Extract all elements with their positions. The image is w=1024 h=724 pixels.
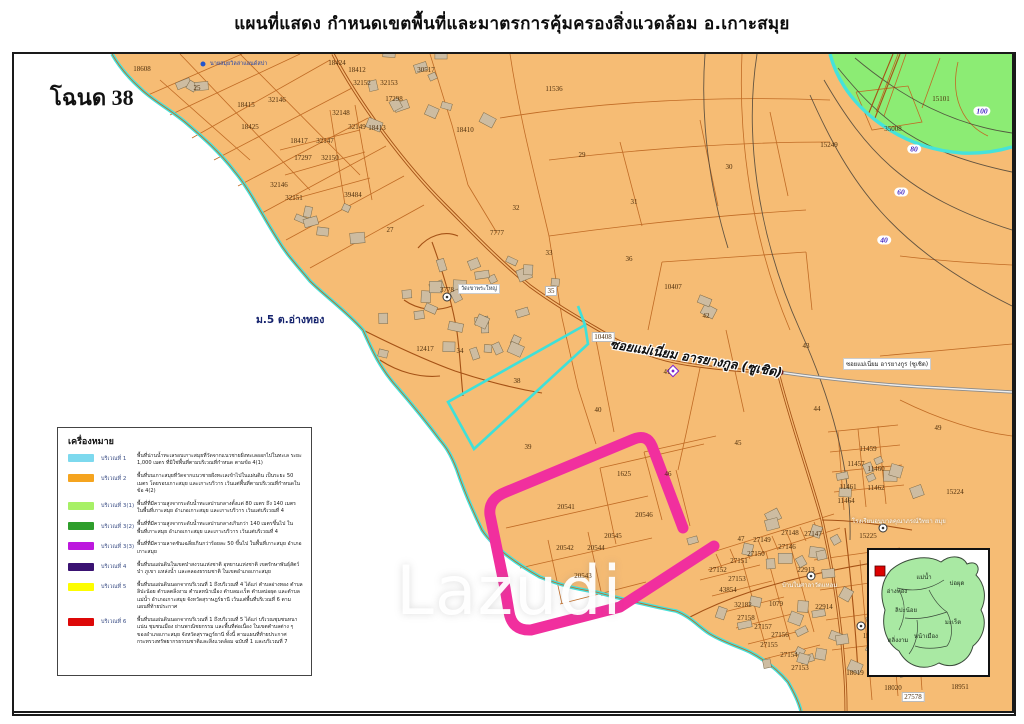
legend-title: เครื่องหมาย xyxy=(68,434,303,448)
resort-poi-icon xyxy=(201,62,206,67)
legend-color-swatch xyxy=(68,502,94,510)
environment-protection-map: แผนที่แสดง กำหนดเขตพื้นที่และมาตรการคุ้ม… xyxy=(0,0,1024,724)
community-poi-icon xyxy=(807,572,815,580)
legend-color-swatch xyxy=(68,454,94,462)
legend-row: บริเวณที่ 3(1) พื้นที่ที่มีความสูงจากระด… xyxy=(68,501,303,516)
temple-poi-icon xyxy=(443,293,451,301)
legend-color-swatch xyxy=(68,474,94,482)
legend-zone-description: พื้นที่บนแผ่นดินในเขตป่าสงวนแห่งชาติ อุท… xyxy=(137,562,303,577)
inset-locator-map: แม่น้ำบ่อผุดอ่างทองลิปะน้อยมะเร็ตตลิ่งงา… xyxy=(867,548,990,677)
legend-row: บริเวณที่ 6 พื้นที่บนแผ่นดินนอกจากบริเวณ… xyxy=(68,617,303,647)
legend-zone-description: พื้นที่ที่มีความสูงจากระดับน้ำทะเลปานกลา… xyxy=(137,501,303,516)
legend-row: บริเวณที่ 1 พื้นที่น่านน้ำทะเลรอบเกาะสมุ… xyxy=(68,453,303,468)
inset-subdistrict-label: บ่อผุด xyxy=(950,578,965,588)
legend-row: บริเวณที่ 2 พื้นที่บนเกาะสมุยที่วัดจากแน… xyxy=(68,473,303,495)
legend-color-swatch xyxy=(68,522,94,530)
inset-subdistrict-label: ลิปะน้อย xyxy=(895,605,917,615)
legend-row: บริเวณที่ 3(2) พื้นที่ที่มีความสูงจากระด… xyxy=(68,521,303,536)
current-location-marker xyxy=(875,566,885,576)
legend-zone-description: พื้นที่บนแผ่นดินนอกจากบริเวณที่ 1 ถึงบริ… xyxy=(137,617,303,647)
legend-color-swatch xyxy=(68,563,94,571)
legend-box: เครื่องหมาย บริเวณที่ 1 พื้นที่น่านน้ำทะ… xyxy=(57,427,312,676)
legend-row: บริเวณที่ 3(3) พื้นที่ที่มีความลาดชันเฉล… xyxy=(68,541,303,556)
legend-zone-name: บริเวณที่ 3(3) xyxy=(101,543,137,551)
legend-zone-name: บริเวณที่ 3(1) xyxy=(101,502,137,510)
school-poi-icon xyxy=(879,524,887,532)
inset-subdistrict-label: มะเร็ต xyxy=(945,617,961,627)
legend-zone-name: บริเวณที่ 4 xyxy=(101,563,137,571)
legend-row: บริเวณที่ 4 พื้นที่บนแผ่นดินในเขตป่าสงวน… xyxy=(68,562,303,577)
poi-icon xyxy=(857,622,865,630)
legend-zone-description: พื้นที่ที่มีความสูงจากระดับน้ำทะเลปานกลา… xyxy=(137,521,303,536)
inset-subdistrict-label: หน้าเมือง xyxy=(914,631,938,641)
inset-subdistrict-label: แม่น้ำ xyxy=(916,572,931,582)
legend-color-swatch xyxy=(68,583,94,591)
legend-row: บริเวณที่ 5 พื้นที่บนแผ่นดินนอกจากบริเวณ… xyxy=(68,582,303,612)
legend-zone-description: พื้นที่บนเกาะสมุยที่วัดจากแนวชายฝั่งทะเล… xyxy=(137,473,303,495)
legend-zone-name: บริเวณที่ 3(2) xyxy=(101,523,137,531)
legend-zone-name: บริเวณที่ 5 xyxy=(101,583,137,591)
inset-island-map xyxy=(869,550,988,675)
legend-zone-description: พื้นที่บนแผ่นดินนอกจากบริเวณที่ 1 ถึงบริ… xyxy=(137,582,303,612)
legend-color-swatch xyxy=(68,542,94,550)
legend-zone-description: พื้นที่น่านน้ำทะเลรอบเกาะสมุยที่วัดจากแน… xyxy=(137,453,303,468)
inset-subdistrict-label: ตลิ่งงาม xyxy=(888,635,909,645)
legend-zone-name: บริเวณที่ 2 xyxy=(101,475,137,483)
legend-color-swatch xyxy=(68,618,94,626)
legend-zone-name: บริเวณที่ 6 xyxy=(101,618,137,626)
road-junction-icon xyxy=(777,369,784,376)
legend-zone-name: บริเวณที่ 1 xyxy=(101,455,137,463)
inset-subdistrict-label: อ่างทอง xyxy=(887,586,907,596)
legend-zone-description: พื้นที่ที่มีความลาดชันเฉลี่ยเกินกว่าร้อย… xyxy=(137,541,303,556)
